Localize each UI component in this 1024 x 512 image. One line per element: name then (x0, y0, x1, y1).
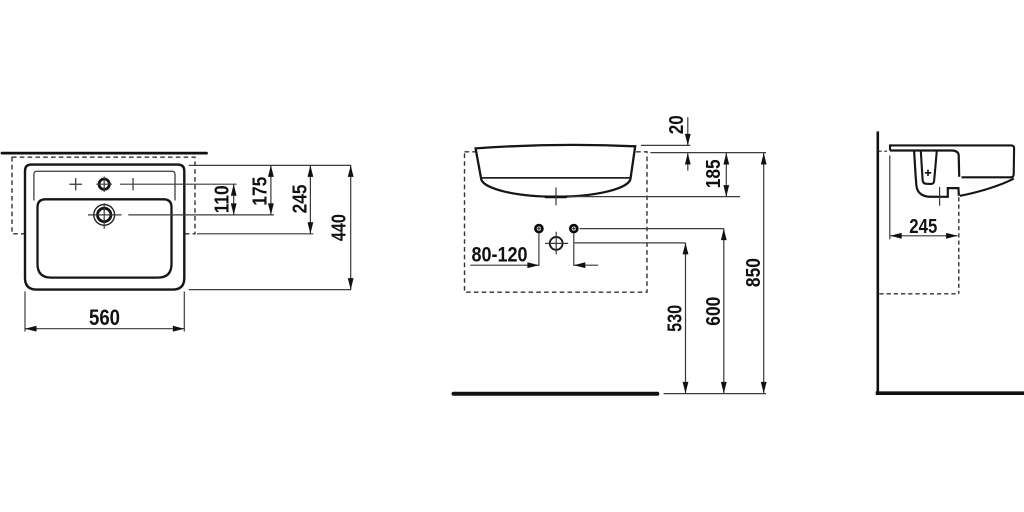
svg-text:80-120: 80-120 (472, 243, 528, 266)
svg-text:440: 440 (329, 214, 351, 241)
svg-text:185: 185 (703, 159, 725, 188)
svg-text:245: 245 (289, 184, 311, 213)
svg-text:175: 175 (249, 177, 271, 206)
svg-text:110: 110 (210, 185, 233, 213)
svg-text:600: 600 (703, 297, 725, 326)
svg-text:245: 245 (909, 216, 937, 238)
svg-text:20: 20 (666, 115, 688, 134)
svg-text:530: 530 (664, 305, 686, 332)
svg-text:850: 850 (743, 258, 765, 287)
svg-text:560: 560 (89, 305, 120, 330)
